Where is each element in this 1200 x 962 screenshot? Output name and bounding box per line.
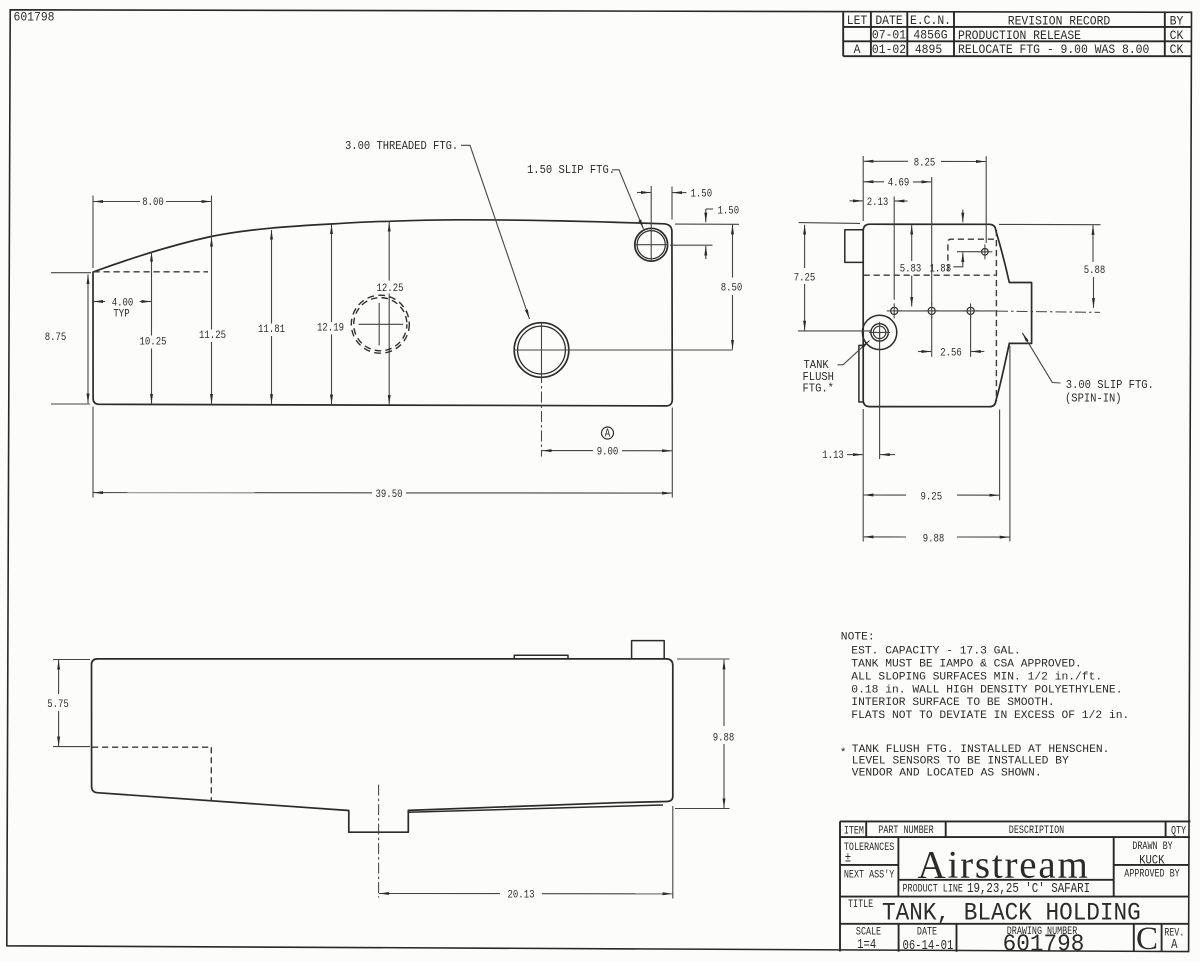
svg-text:01-02: 01-02 [872, 43, 906, 58]
svg-text:3.00 THREADED FTG.: 3.00 THREADED FTG. [345, 141, 458, 154]
svg-text:7.25: 7.25 [794, 272, 816, 284]
svg-text:1=4: 1=4 [857, 937, 876, 953]
svg-text:5.75: 5.75 [47, 698, 69, 710]
svg-text:EST. CAPACITY - 17.3 GAL.: EST. CAPACITY - 17.3 GAL. [851, 645, 1020, 657]
svg-text:FLATS NOT TO DEVIATE IN EXCESS: FLATS NOT TO DEVIATE IN EXCESS OF 1/2 in… [851, 710, 1129, 722]
svg-text:8.25: 8.25 [914, 157, 936, 169]
svg-text:INTERIOR SURFACE TO BE SMOOTH.: INTERIOR SURFACE TO BE SMOOTH. [851, 697, 1054, 709]
svg-text:12.25: 12.25 [376, 283, 403, 295]
svg-text:LEVEL SENSORS TO BE INSTALLED: LEVEL SENSORS TO BE INSTALLED BY [852, 756, 1069, 768]
svg-text:8.75: 8.75 [45, 331, 67, 343]
svg-text:10.25: 10.25 [139, 336, 166, 348]
svg-text:8.00: 8.00 [142, 196, 164, 208]
svg-text:TANK MUST BE IAMPO & CSA APPRO: TANK MUST BE IAMPO & CSA APPROVED. [851, 658, 1082, 670]
svg-text:9.88: 9.88 [713, 732, 735, 744]
svg-text:TOLERANCES: TOLERANCES [844, 841, 895, 853]
svg-text:20.13: 20.13 [507, 889, 534, 901]
svg-text:DRAWN BY: DRAWN BY [1132, 840, 1172, 852]
svg-text:(SPIN-IN): (SPIN-IN) [1065, 393, 1122, 406]
svg-text:QTY: QTY [1171, 824, 1186, 836]
svg-text:2.13: 2.13 [867, 196, 889, 208]
svg-text:LET: LET [847, 14, 868, 29]
svg-text:TITLE: TITLE [848, 898, 873, 910]
svg-text:*: * [840, 748, 847, 760]
svg-text:PART NUMBER: PART NUMBER [878, 824, 934, 836]
svg-text:4856G: 4856G [913, 28, 947, 43]
svg-text:TYP: TYP [113, 308, 129, 320]
svg-text:1.50 SLIP FTG.: 1.50 SLIP FTG. [527, 165, 615, 178]
svg-text:9.88: 9.88 [923, 533, 945, 545]
svg-text:601798: 601798 [1003, 931, 1085, 958]
svg-text:PRODUCT LINE: PRODUCT LINE [903, 882, 964, 894]
svg-text:1.50: 1.50 [718, 205, 740, 217]
svg-text:4.69: 4.69 [888, 177, 910, 189]
svg-text:REVISION RECORD: REVISION RECORD [1008, 14, 1111, 29]
svg-text:KUCK: KUCK [1139, 853, 1164, 868]
svg-text:NOTE:: NOTE: [841, 632, 875, 644]
svg-text:DATE: DATE [875, 14, 902, 29]
svg-text:9.25: 9.25 [920, 491, 942, 503]
svg-text:0.18 in. WALL HIGH DENSITY POL: 0.18 in. WALL HIGH DENSITY POLYETHYLENE. [851, 684, 1122, 696]
svg-text:ALL SLOPING SURFACES MIN. 1/2: ALL SLOPING SURFACES MIN. 1/2 in./ft. [851, 671, 1102, 683]
svg-text:1.83: 1.83 [930, 263, 952, 275]
svg-text:RELOCATE FTG - 9.00 WAS 8.00: RELOCATE FTG - 9.00 WAS 8.00 [958, 43, 1149, 58]
svg-text:2.56: 2.56 [940, 347, 962, 359]
svg-text:12.19: 12.19 [317, 322, 344, 334]
svg-text:3.00 SLIP FTG.: 3.00 SLIP FTG. [1066, 380, 1154, 393]
svg-text:5.83: 5.83 [900, 263, 922, 275]
svg-text:TANK FLUSH FTG. INSTALLED AT H: TANK FLUSH FTG. INSTALLED AT HENSCHEN. [852, 744, 1110, 756]
svg-text:1.13: 1.13 [822, 449, 844, 461]
svg-text:NEXT ASS'Y: NEXT ASS'Y [844, 868, 895, 880]
svg-text:DESCRIPTION: DESCRIPTION [1009, 824, 1065, 836]
svg-text:CK: CK [1170, 43, 1184, 58]
svg-text:C: C [1136, 921, 1158, 957]
svg-text:11.81: 11.81 [258, 323, 285, 335]
svg-text:A: A [605, 428, 611, 441]
svg-text:±: ± [845, 850, 851, 866]
svg-text:601798: 601798 [14, 10, 55, 25]
svg-text:E.C.N.: E.C.N. [910, 14, 951, 29]
svg-text:19,23,25 'C' SAFARI: 19,23,25 'C' SAFARI [967, 881, 1090, 896]
svg-text:8.50: 8.50 [721, 282, 743, 294]
svg-text:07-01: 07-01 [872, 28, 906, 43]
svg-text:TANK: TANK [804, 360, 830, 373]
svg-text:CK: CK [1170, 28, 1184, 43]
svg-text:BY: BY [1170, 14, 1184, 29]
svg-text:ITEM: ITEM [844, 824, 864, 836]
svg-text:06-14-01: 06-14-01 [902, 938, 953, 954]
svg-text:39.50: 39.50 [375, 488, 402, 500]
svg-text:1.50: 1.50 [691, 188, 713, 200]
svg-text:PRODUCTION RELEASE: PRODUCTION RELEASE [958, 28, 1081, 43]
svg-text:DATE: DATE [917, 926, 937, 938]
svg-text:5.88: 5.88 [1084, 264, 1106, 276]
svg-text:VENDOR AND LOCATED AS SHOWN.: VENDOR AND LOCATED AS SHOWN. [852, 767, 1042, 779]
svg-text:4895: 4895 [915, 43, 942, 58]
svg-text:APPROVED BY: APPROVED BY [1124, 868, 1180, 880]
svg-text:A: A [1171, 937, 1178, 953]
svg-text:A: A [854, 43, 862, 58]
svg-text:FTG.*: FTG.* [803, 383, 834, 396]
svg-text:11.25: 11.25 [199, 330, 226, 342]
svg-text:9.00: 9.00 [597, 446, 619, 458]
